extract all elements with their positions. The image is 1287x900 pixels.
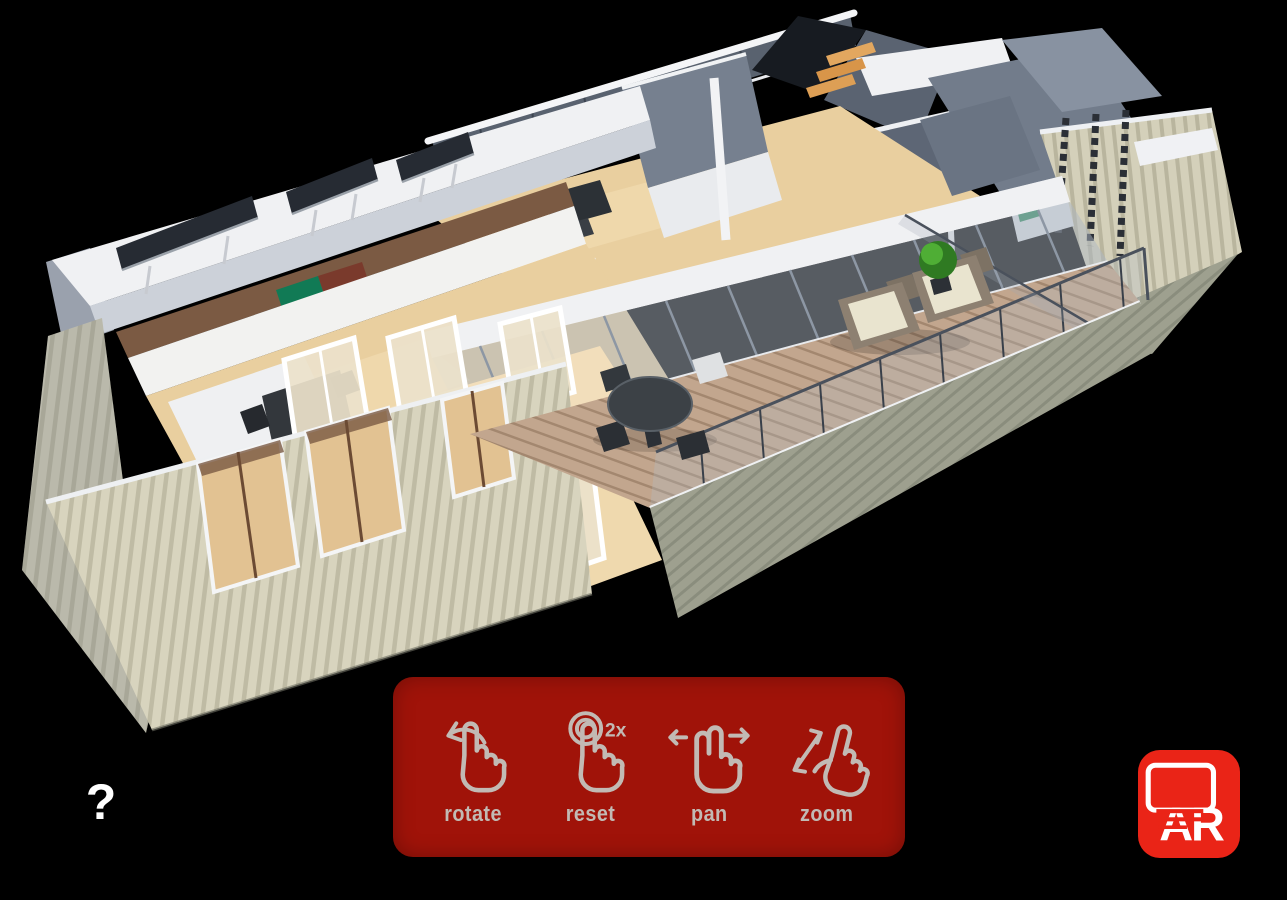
double-tap-gesture-icon: 2x [547,707,635,803]
gesture-zoom: zoom [771,707,883,827]
gesture-label: pan [691,801,728,827]
gesture-label: reset [566,801,616,827]
pan-gesture-icon [665,707,753,803]
gesture-rotate: rotate [417,707,529,827]
pinch-zoom-gesture-icon [783,707,871,803]
gesture-label: zoom [800,801,854,827]
app-stage: ? rotate 2x reset [0,0,1287,900]
ar-screen-icon: AR [1138,750,1240,858]
gesture-reset: 2x reset [535,707,647,827]
ar-button[interactable]: AR [1138,750,1240,858]
gesture-label: rotate [444,801,502,827]
help-button[interactable]: ? [76,770,126,834]
ar-button-label: AR [1159,799,1224,851]
gesture-legend-panel: rotate 2x reset pan [393,677,905,857]
gesture-pan: pan [653,707,765,827]
rotate-gesture-icon [429,707,517,803]
double-tap-count-badge: 2x [605,720,627,742]
